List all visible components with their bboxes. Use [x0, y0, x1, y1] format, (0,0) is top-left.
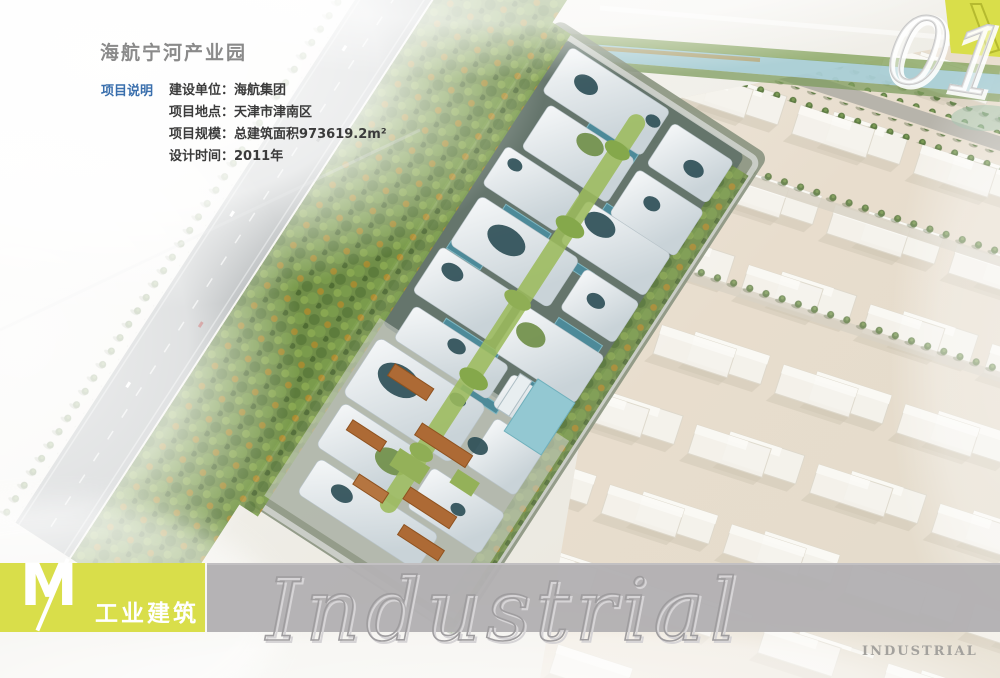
page-number-text: 01: [879, 0, 1000, 120]
page-title: 海航宁河产业园: [100, 38, 247, 65]
logo-letter: M: [20, 551, 78, 619]
project-info-label: 项目说明: [101, 80, 153, 168]
info-line-year: 设计时间：2011年: [169, 146, 387, 168]
info-line-scale: 项目规模：总建筑面积973619.2m²: [169, 124, 387, 146]
project-info: 项目说明 建设单位：海航集团 项目地点：天津市津南区 项目规模：总建筑面积973…: [101, 80, 387, 168]
watermark-script: Industrial: [264, 561, 742, 661]
presentation-board: 01 01 Industrial Industrial 海航宁河产业园 项目说明…: [0, 0, 1000, 678]
industrial-caps-label: INDUSTRIAL: [862, 644, 978, 659]
project-info-lines: 建设单位：海航集团 项目地点：天津市津南区 项目规模：总建筑面积973619.2…: [169, 80, 387, 168]
header: 海航宁河产业园: [100, 38, 247, 65]
info-line-client: 建设单位：海航集团: [169, 80, 387, 102]
category-label: 工业建筑: [95, 594, 199, 628]
info-line-location: 项目地点：天津市津南区: [169, 102, 387, 124]
page-number: 01 01: [879, 0, 1000, 123]
brand-block: M 工业建筑: [0, 563, 205, 632]
